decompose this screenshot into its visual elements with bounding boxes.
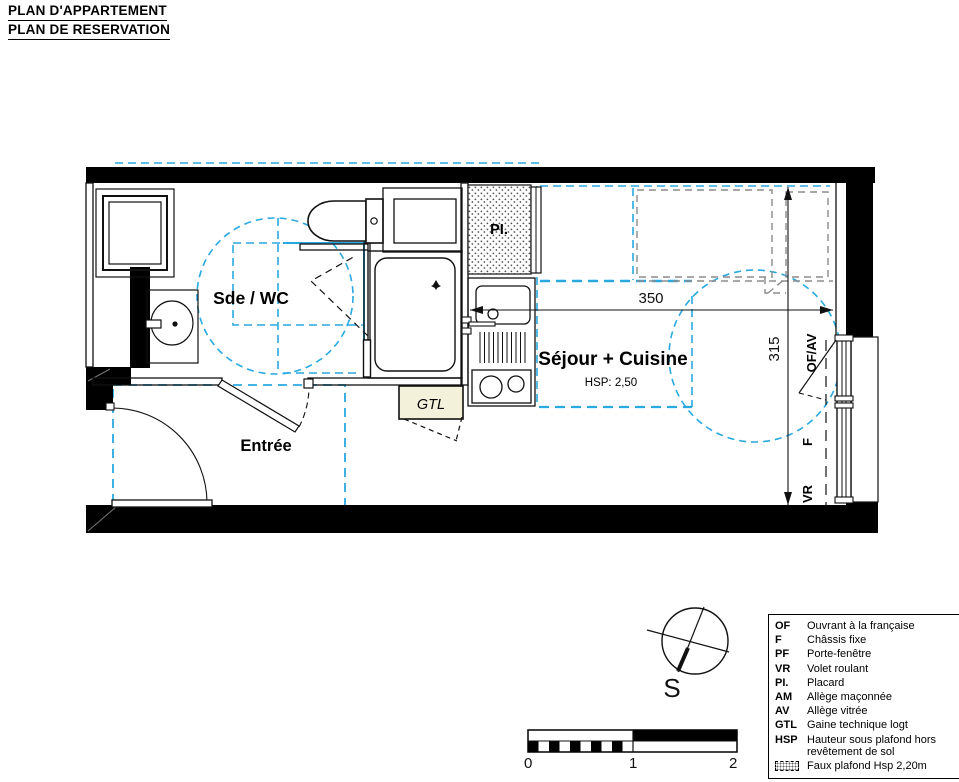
kitchen-sink: [476, 286, 530, 324]
faux-plafond-zones: [637, 190, 833, 293]
scale-label-1: 1: [629, 755, 637, 772]
floor-plan-page: PLAN D'APPARTEMENT PLAN DE RESERVATION: [0, 0, 959, 782]
reservation-rect-bathroom: [233, 243, 364, 325]
cooktop: [472, 370, 531, 403]
scale-label-0: 0: [524, 755, 532, 772]
window-ofav-label: OF/AV: [804, 333, 819, 372]
svg-text:350: 350: [638, 290, 663, 307]
compass-south-label: S: [663, 673, 680, 703]
bathroom-counter: [383, 188, 462, 252]
wall-top: [86, 167, 875, 183]
living-hsp-label: HSP: 2,50: [585, 377, 637, 389]
legend-row: PI. Placard: [775, 677, 958, 690]
legend-row: F Châssis fixe: [775, 634, 958, 647]
legend-row-faux-plafond: Faux plafond Hsp 2,20m: [775, 760, 958, 773]
utility-shaft: [96, 189, 174, 277]
shower-tray: [368, 251, 462, 378]
window-vr-label: VR: [800, 484, 815, 503]
wall-right-upper: [846, 183, 873, 337]
legend-row: AM Allège maçonnée: [775, 691, 958, 704]
living-label: Séjour + Cuisine: [538, 349, 687, 370]
shower-drain-icon: [431, 280, 441, 290]
entry-label: Entrée: [240, 437, 291, 455]
kitchen-faucet: [462, 317, 495, 334]
gtl-label: GTL: [417, 397, 445, 413]
toilet: [308, 199, 383, 243]
legend: OF Ouvrant à la française F Châssis fixe…: [768, 614, 959, 779]
legend-row: PF Porte-fenêtre: [775, 648, 958, 661]
legend-row: OF Ouvrant à la française: [775, 620, 958, 633]
door-swing-dashed: [311, 255, 368, 336]
washbasin: [146, 290, 198, 363]
bathroom-label: Sde / WC: [213, 288, 289, 308]
drainboard: [480, 332, 525, 363]
svg-text:315: 315: [766, 336, 783, 361]
faux-plafond-swatch-icon: [775, 761, 799, 771]
compass: S: [647, 607, 729, 703]
window-frame: [837, 337, 851, 502]
window-f-label: F: [800, 438, 815, 446]
entry-door: [106, 403, 212, 507]
legend-row: HSP Hauteur sous plafond hors revêtement…: [775, 734, 958, 759]
closet-label: PI.: [490, 222, 508, 238]
wall-bottom: [86, 505, 878, 533]
scale-label-2: 2: [729, 755, 737, 772]
legend-row: GTL Gaine technique logt: [775, 719, 958, 732]
gtl-duct: [399, 386, 463, 441]
dimension-315: 315: [766, 187, 792, 505]
reservation-rect-entry: [113, 385, 345, 512]
wall-left-thin: [86, 183, 93, 367]
bathroom-door: [218, 255, 371, 432]
legend-row: AV Allège vitrée: [775, 705, 958, 718]
scale-bar: 0 1 2: [524, 730, 737, 772]
legend-row: VR Volet roulant: [775, 663, 958, 676]
south-pointer: [678, 648, 688, 671]
window-sill: [851, 337, 878, 502]
kitchen-unit: [462, 278, 535, 406]
